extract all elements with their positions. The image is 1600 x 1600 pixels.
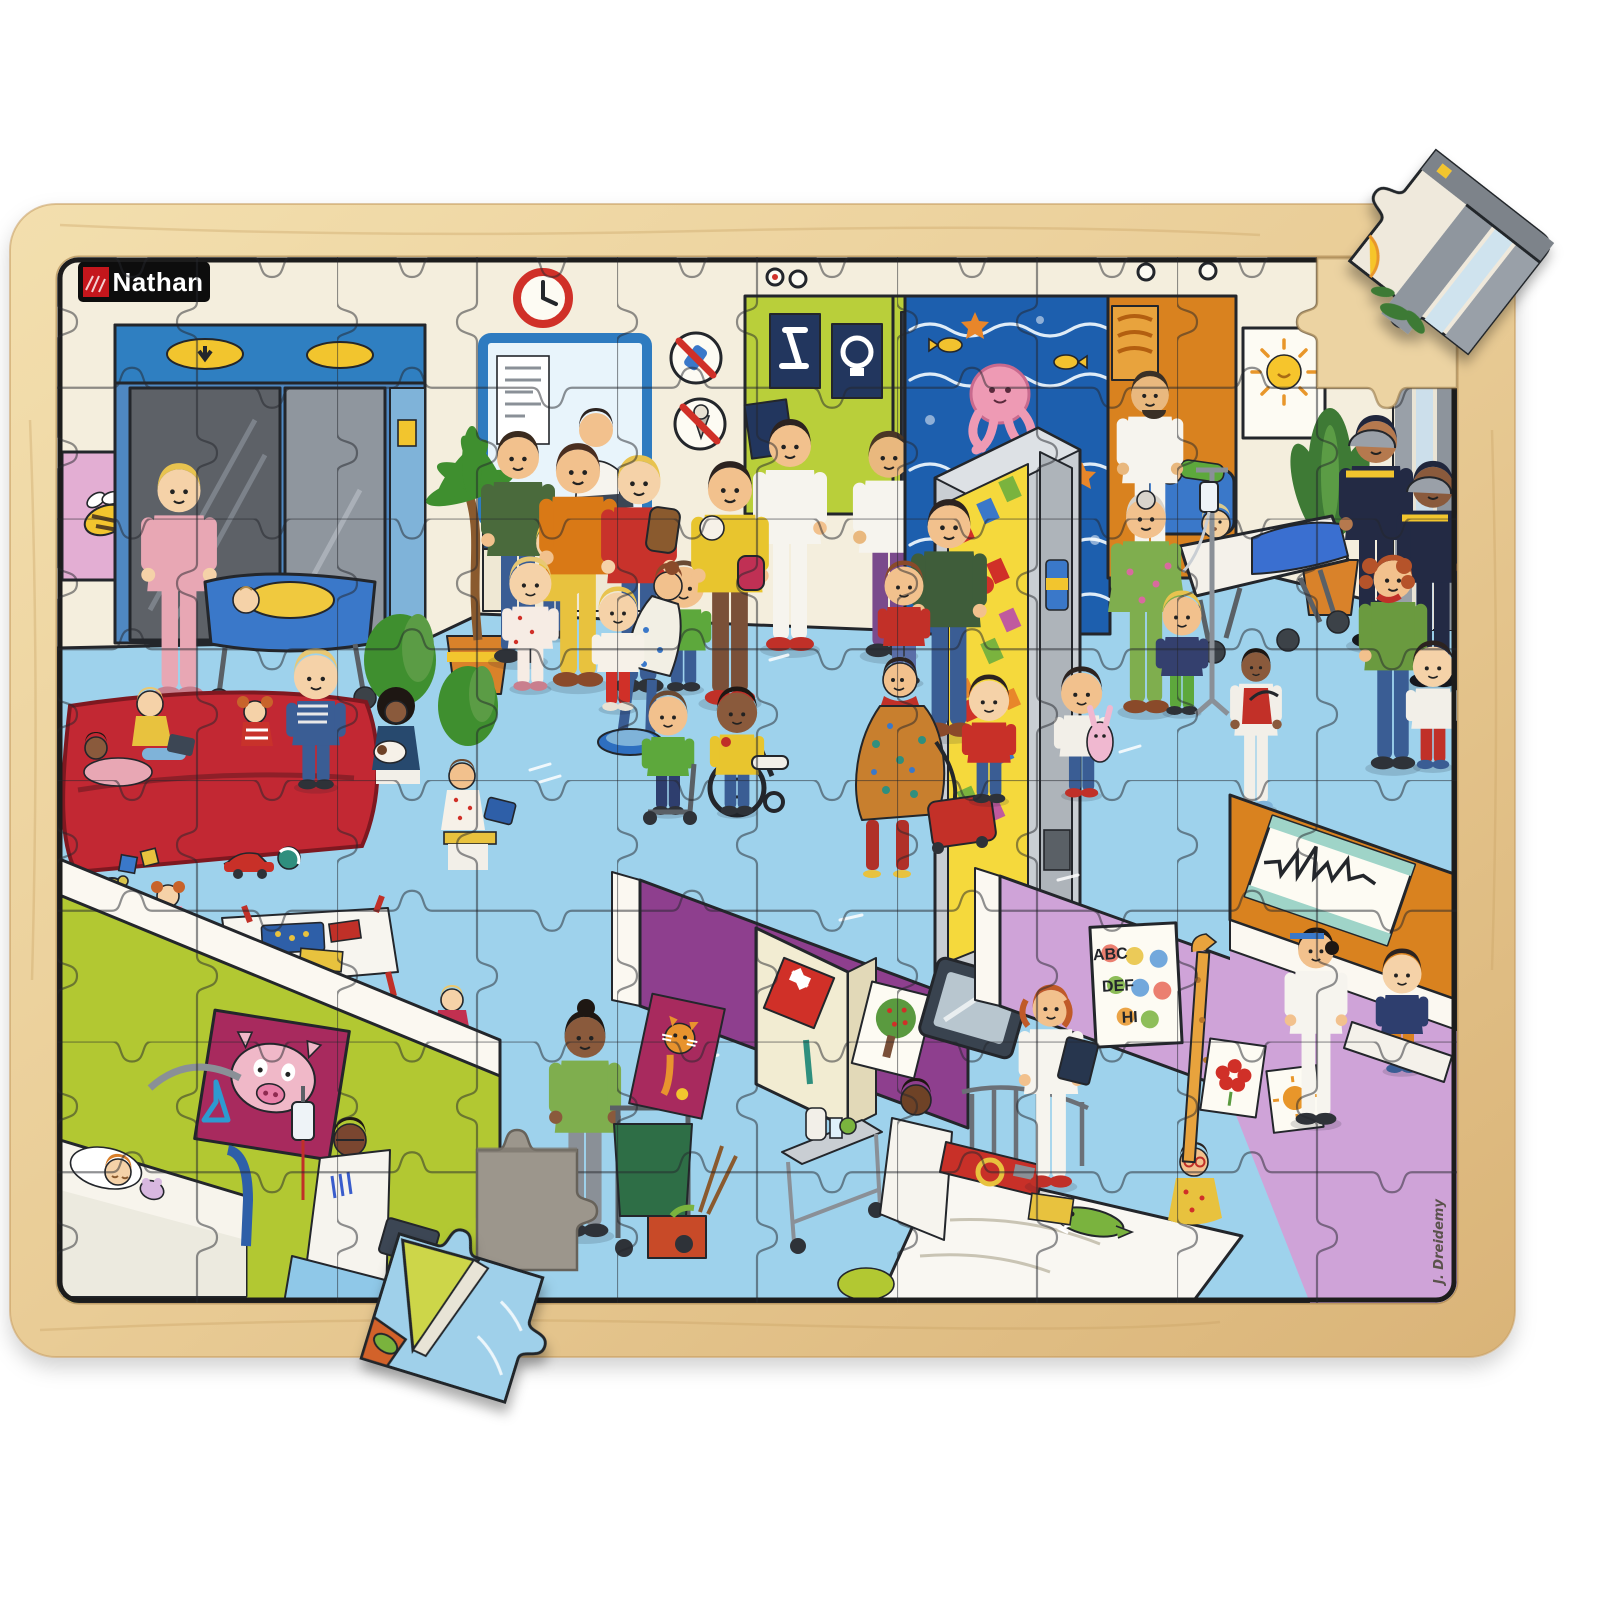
product-photo: ABC DEF HI <box>0 0 1600 1600</box>
hospital-scene-print: ABC DEF HI <box>57 257 1469 1314</box>
artist-signature: J. Dreidemy <box>1432 1199 1447 1287</box>
puzzle-photo-svg: ABC DEF HI <box>0 0 1600 1600</box>
jigsaw-grid <box>57 257 1457 1303</box>
